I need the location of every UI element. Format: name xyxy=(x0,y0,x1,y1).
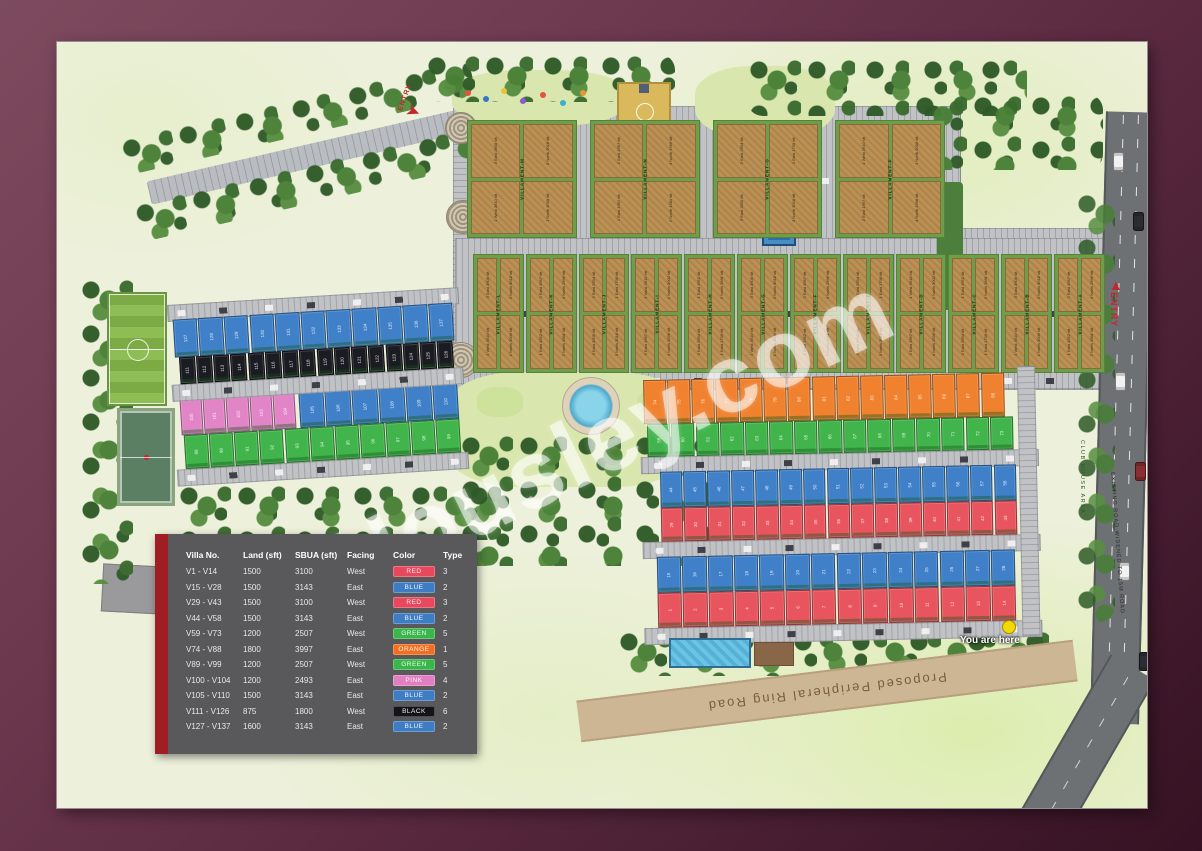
villament-block: 3 East 3605 sft3 North 3018 sft1 West 39… xyxy=(737,254,788,373)
villa-number: 124 xyxy=(408,353,413,361)
villa-number: 77 xyxy=(724,398,729,403)
villa-number: 136 xyxy=(413,320,418,328)
legend-cell-type: 3 xyxy=(443,567,471,576)
villa-unit: 70 xyxy=(916,418,940,451)
legend-cell-land: 1800 xyxy=(243,645,295,654)
villa-number: 96 xyxy=(370,438,375,443)
villa-unit: 51 xyxy=(827,468,850,504)
villament-plot: 1 East 1952 sft xyxy=(688,258,708,312)
villa-number: 12 xyxy=(950,602,955,607)
football-field xyxy=(107,292,167,406)
villament-plot: 4 North 1996 sft xyxy=(923,315,943,369)
villament-block: 2 East 2694 sft1 East 1709 sft3 East 360… xyxy=(713,120,823,238)
villa-number: 87 xyxy=(966,393,971,398)
villa-unit: 86 xyxy=(932,374,956,418)
villament-plot: 2 North 1981 sft xyxy=(646,181,695,235)
villa-number: 81 xyxy=(821,396,826,401)
villa-unit: 135 xyxy=(377,306,404,345)
plot-label: 2 North 1981 sft xyxy=(817,333,837,351)
villa-unit: 91 xyxy=(234,431,260,466)
legend-cell-villa_no: V1 - V14 xyxy=(186,567,243,576)
villa-number: 72 xyxy=(975,431,980,436)
villa-number: 5 xyxy=(770,607,775,610)
villa-number: 125 xyxy=(426,352,431,360)
villament-block: 1 East 1952 sft2 North 1981 sft2 East 26… xyxy=(948,254,999,373)
villa-unit: 58 xyxy=(994,464,1017,500)
villament-plot: 1 East 1709 sft xyxy=(606,258,626,312)
villa-unit: 99 xyxy=(436,418,462,453)
legend-color-chip: GREEN xyxy=(393,628,435,639)
villa-unit: 46 xyxy=(707,470,730,506)
villament-plot: 2 East 2694 sft xyxy=(583,258,603,312)
villa-number: 127 xyxy=(183,334,188,342)
legend-row: V44 - V5815003143EastBLUE2 xyxy=(168,611,477,627)
legend-cell-facing: East xyxy=(347,583,393,592)
villament-block: 2 East 1967 sft4 North 1996 sft1 East 19… xyxy=(790,254,841,373)
villament-plot: 4 North 1996 sft xyxy=(1081,258,1101,312)
plot-label: 3 East 3605 sft xyxy=(847,333,867,351)
villament-plot: 2 East 1967 sft xyxy=(900,315,920,369)
plot-label: 1 West 3910 sft xyxy=(741,333,761,351)
villa-unit: 3 xyxy=(709,591,734,627)
villa-unit: 49 xyxy=(779,469,802,505)
plot-label: 3 North 3018 sft xyxy=(870,333,890,351)
villa-number: 59 xyxy=(656,438,661,443)
villa-unit: 68 xyxy=(867,419,891,452)
legend-header-cell: Land (sft) xyxy=(243,550,295,560)
villament-name-label: VILLAMENT-B xyxy=(1024,293,1029,334)
villa-unit: 24 xyxy=(888,552,913,589)
villa-number: 8 xyxy=(847,605,852,608)
villament-plot: 2 North 1981 sft xyxy=(975,258,995,312)
legend-cell-land: 1500 xyxy=(243,691,295,700)
legend-header-cell: Color xyxy=(393,550,443,560)
villa-number: 2 xyxy=(693,608,698,611)
villa-unit: 120 xyxy=(334,347,352,375)
left-villa-section: 127128129130131132133134135136137 111112… xyxy=(167,285,468,487)
villa-unit: 61 xyxy=(696,423,720,456)
villa-unit: 64 xyxy=(769,421,793,454)
legend-cell-facing: East xyxy=(347,691,393,700)
villa-number: 56 xyxy=(955,481,960,486)
villa-number: 113 xyxy=(219,365,224,372)
villa-number: 46 xyxy=(716,486,721,491)
plot-label: 2 East 1967 sft xyxy=(635,333,655,351)
villa-unit: 41 xyxy=(947,501,970,535)
plot-label: 2 East 1967 sft xyxy=(839,184,888,231)
villa-unit: 35 xyxy=(803,504,826,538)
car-icon xyxy=(1115,372,1126,391)
plot-label: 1 East 1952 sft xyxy=(688,276,708,294)
villa-unit: 19 xyxy=(759,554,784,591)
club-house-area-label: CLUB HOUSE AREA xyxy=(1079,440,1085,514)
plot-label: 1 East 1952 sft xyxy=(1058,333,1078,351)
villa-unit: 118 xyxy=(299,349,317,377)
plot-label: 2 North 1981 sft xyxy=(975,276,995,294)
villa-number: 1 xyxy=(667,609,672,612)
villa-unit: 76 xyxy=(691,379,715,423)
legend-cell-type: 5 xyxy=(443,629,471,638)
villa-number: 64 xyxy=(779,435,784,440)
villament-block: 2 East 1967 sft4 North 1996 sft1 East 19… xyxy=(526,254,577,373)
villa-unit: 122 xyxy=(368,345,386,373)
villament-block: 3 East 3605 sft3 North 3018 sft1 West 39… xyxy=(467,120,577,238)
legend-cell-sbua: 3100 xyxy=(295,598,347,607)
villa-unit: 57 xyxy=(970,465,993,501)
villa-number: 137 xyxy=(439,318,444,326)
legend-header-row: Villa No.Land (sft)SBUA (sft)FacingColor… xyxy=(168,546,477,564)
villa-unit: 105 xyxy=(298,391,326,428)
villa-unit: 5 xyxy=(760,590,785,626)
villa-number: 74 xyxy=(652,399,657,404)
villament-plot: 1 North 3000 sft xyxy=(892,124,941,178)
villament-plot: 2 East 1967 sft xyxy=(635,315,655,369)
villament-name-label: VILLAMENT-N xyxy=(642,158,647,199)
plot-label: 4 North 1996 sft xyxy=(892,184,941,231)
villa-number: 34 xyxy=(789,520,794,525)
plot-label: 1 North 3000 sft xyxy=(764,333,784,351)
villa-number: 71 xyxy=(950,432,955,437)
villament-plot: 2 North 1981 sft xyxy=(711,258,731,312)
villament-plot: 2 East 1967 sft xyxy=(594,124,643,178)
you-are-here-marker[interactable] xyxy=(1002,620,1016,634)
plot-label: 2 North 1981 sft xyxy=(646,184,695,231)
villa-number: 92 xyxy=(269,444,274,449)
villa-unit: 132 xyxy=(300,310,327,349)
legend-cell-type: 5 xyxy=(443,660,471,669)
villa-unit: 108 xyxy=(378,386,406,423)
villa-unit: 21 xyxy=(811,553,836,590)
villa-number: 126 xyxy=(443,351,448,359)
villament-plot: 2 East 1967 sft xyxy=(1058,258,1078,312)
plot-label: 1 East 1709 sft xyxy=(975,333,995,351)
villa-unit: 14 xyxy=(991,585,1016,621)
villa-row-v74-v88: 747576777879808182838485868788 xyxy=(642,373,1005,425)
villa-number: 132 xyxy=(311,326,316,334)
villament-plot: 1 West 3910 sft xyxy=(635,258,655,312)
plot-label: 1 North 3000 sft xyxy=(892,127,941,174)
villa-unit: 42 xyxy=(970,501,993,535)
villa-unit: 131 xyxy=(275,312,302,351)
villa-number: 14 xyxy=(1001,601,1006,606)
villa-number: 98 xyxy=(421,435,426,440)
villa-number: 90 xyxy=(219,447,224,452)
villa-number: 13 xyxy=(976,601,981,606)
villa-number: 17 xyxy=(718,571,723,576)
villament-plot: 3 North 3018 sft xyxy=(606,315,626,369)
swimming-pool-clubhouse xyxy=(669,638,751,668)
villament-plot: 3 East 3605 sft xyxy=(847,315,867,369)
villa-unit: 29 xyxy=(660,507,683,541)
villa-unit: 103 xyxy=(249,394,273,431)
villament-plot: 1 North 3000 sft xyxy=(500,315,520,369)
villa-number: 82 xyxy=(845,395,850,400)
villament-plot: 1 West 3910 sft xyxy=(741,315,761,369)
villa-number: 41 xyxy=(956,516,961,521)
villament-plot: 2 East 2694 sft xyxy=(952,315,972,369)
villament-block: 3 East 3605 sft3 North 3018 sft1 West 39… xyxy=(1001,254,1052,373)
plot-label: 3 North 3018 sft xyxy=(500,276,520,294)
villament-plot: 4 North 1996 sft xyxy=(817,258,837,312)
villa-unit: 110 xyxy=(432,382,460,419)
villa-unit: 8 xyxy=(837,589,862,625)
legend-cell-type: 2 xyxy=(443,691,471,700)
villa-number: 76 xyxy=(700,398,705,403)
villa-number: 115 xyxy=(254,362,259,369)
villa-number: 15 xyxy=(666,572,671,577)
villa-unit: 48 xyxy=(755,469,778,505)
park-lawn-patch xyxy=(477,387,523,417)
villa-unit: 43 xyxy=(994,500,1017,534)
villa-number: 109 xyxy=(416,399,421,407)
legend-cell-land: 1200 xyxy=(243,676,295,685)
legend-cell-sbua: 2507 xyxy=(295,660,347,669)
legend-header-cell: Type xyxy=(443,550,471,560)
villament-plot: 4 North 1996 sft xyxy=(553,258,573,312)
legend-cell-type: 6 xyxy=(443,707,471,716)
villament-plot: 3 East 3605 sft xyxy=(1005,258,1025,312)
villament-block: 1 West 3910 sft1 North 3000 sft2 East 19… xyxy=(896,254,947,373)
plot-label: 3 North 3018 sft xyxy=(1028,276,1048,294)
villa-unit: 27 xyxy=(965,550,990,587)
villa-unit: 107 xyxy=(351,387,379,424)
villa-number: 104 xyxy=(282,407,287,415)
legend-cell-facing: East xyxy=(347,676,393,685)
villa-number: 88 xyxy=(990,392,995,397)
legend-cell-type: 2 xyxy=(443,722,471,731)
villa-unit: 74 xyxy=(643,380,667,424)
villa-number: 110 xyxy=(443,397,448,404)
villa-unit: 31 xyxy=(708,506,731,540)
villament-plot: 2 North 1981 sft xyxy=(817,315,837,369)
villa-number: 57 xyxy=(979,481,984,486)
legend-color-chip: RED xyxy=(393,597,435,608)
villa-unit: 75 xyxy=(667,379,691,423)
plot-label: 1 West 3910 sft xyxy=(900,276,920,294)
villament-plot: 2 East 1967 sft xyxy=(530,258,550,312)
villa-number: 42 xyxy=(980,516,985,521)
villa-unit: 1 xyxy=(657,592,682,628)
villa-number: 58 xyxy=(1003,480,1008,485)
villa-unit: 130 xyxy=(249,314,276,353)
legend-cell-type: 1 xyxy=(443,645,471,654)
plot-label: 3 East 3605 sft xyxy=(1005,276,1025,294)
villa-unit: 73 xyxy=(990,416,1014,449)
legend-cell-land: 1200 xyxy=(243,629,295,638)
legend-cell-villa_no: V29 - V43 xyxy=(186,598,243,607)
car-icon xyxy=(1133,212,1144,231)
plot-label: 2 East 1967 sft xyxy=(1058,276,1078,294)
villament-block: 1 West 3910 sft1 North 3000 sft2 East 19… xyxy=(835,120,945,238)
villa-number: 91 xyxy=(244,446,249,451)
villa-unit: 66 xyxy=(818,420,842,453)
villa-unit: 52 xyxy=(850,467,873,503)
villa-unit: 129 xyxy=(223,315,250,354)
plot-label: 3 North 3018 sft xyxy=(606,333,626,351)
villa-unit: 89 xyxy=(183,434,209,469)
legend-cell-sbua: 1800 xyxy=(295,707,347,716)
villa-number: 55 xyxy=(931,482,936,487)
legend-cell-sbua: 3143 xyxy=(295,583,347,592)
villament-plot: 1 East 1709 sft xyxy=(870,258,890,312)
plot-label: 1 East 1709 sft xyxy=(870,276,890,294)
villa-number: 135 xyxy=(388,322,393,330)
villa-unit: 17 xyxy=(708,555,733,592)
plot-label: 4 North 1996 sft xyxy=(817,276,837,294)
plot-label: 2 East 2694 sft xyxy=(952,333,972,351)
villa-unit: 16 xyxy=(682,556,707,593)
villament-plot: 1 East 1952 sft xyxy=(952,258,972,312)
legend-cell-sbua: 3997 xyxy=(295,645,347,654)
villa-number: 37 xyxy=(860,518,865,523)
villa-unit: 12 xyxy=(940,586,965,622)
villa-unit: 104 xyxy=(273,392,297,429)
villa-unit: 71 xyxy=(941,417,965,450)
villament-plot: 1 West 3910 sft xyxy=(839,124,888,178)
car-icon xyxy=(1135,462,1146,481)
villa-number: 20 xyxy=(795,569,800,574)
villament-name-label: VILLAMENT-C xyxy=(971,293,976,334)
legend-row: V1 - V1415003100WestRED3 xyxy=(168,564,477,580)
villa-number: 73 xyxy=(999,431,1004,436)
legend-header-cell: SBUA (sft) xyxy=(295,550,347,560)
villa-unit: 23 xyxy=(862,552,887,589)
villa-unit: 119 xyxy=(316,348,334,376)
villa-number: 19 xyxy=(769,570,774,575)
villa-number: 75 xyxy=(676,399,681,404)
legend-color-chip: BLUE xyxy=(393,690,435,701)
villa-unit: 90 xyxy=(209,432,235,467)
villament-plot: 2 East 1967 sft xyxy=(839,181,888,235)
villa-unit: 112 xyxy=(196,355,214,383)
villament-plot: 3 East 3605 sft xyxy=(741,258,761,312)
plot-label: 2 East 1967 sft xyxy=(530,276,550,294)
legend-row: V74 - V8818003997EastORANGE1 xyxy=(168,642,477,658)
legend-cell-facing: West xyxy=(347,567,393,576)
legend-cell-facing: East xyxy=(347,645,393,654)
villa-number: 112 xyxy=(202,366,207,373)
entry-side-label: ▲ ENTRY xyxy=(1109,280,1123,327)
villa-number: 62 xyxy=(730,436,735,441)
villa-number: 23 xyxy=(872,568,877,573)
villa-unit: 133 xyxy=(326,309,353,348)
legend-row: V111 - V1268751800WestBLACK6 xyxy=(168,704,477,720)
villa-number: 106 xyxy=(336,404,341,412)
legend-body: V1 - V1415003100WestRED3V15 - V281500314… xyxy=(168,564,477,735)
legend-cell-sbua: 3143 xyxy=(295,691,347,700)
villa-number: 63 xyxy=(754,436,759,441)
plot-label: 2 East 1967 sft xyxy=(594,127,643,174)
legend-cell-type: 2 xyxy=(443,583,471,592)
plot-label: 1 North 3000 sft xyxy=(1028,333,1048,351)
villa-unit: 126 xyxy=(437,341,455,369)
villament-plot: 1 North 3000 sft xyxy=(923,258,943,312)
playground-equipment-icon xyxy=(465,90,471,96)
villa-unit: 67 xyxy=(843,419,867,452)
villa-number: 50 xyxy=(812,484,817,489)
villa-number: 67 xyxy=(852,434,857,439)
villa-number: 123 xyxy=(391,354,396,362)
villa-unit: 111 xyxy=(179,356,197,384)
right-villa-section: 747576777879808182838485868788 596061626… xyxy=(639,366,1045,669)
villa-unit: 109 xyxy=(405,384,433,421)
villa-unit: 83 xyxy=(860,375,884,419)
villa-number: 35 xyxy=(813,519,818,524)
villa-number: 29 xyxy=(669,522,674,527)
villa-unit: 53 xyxy=(874,467,897,503)
villa-number: 9 xyxy=(873,605,878,608)
villa-number: 22 xyxy=(846,568,851,573)
villament-plot: 3 East 3605 sft xyxy=(471,124,520,178)
legend-table: Villa No.Land (sft)SBUA (sft)FacingColor… xyxy=(155,534,477,754)
car-icon xyxy=(1139,652,1147,671)
villa-number: 129 xyxy=(234,331,239,339)
villa-number: 49 xyxy=(788,485,793,490)
villa-unit: 127 xyxy=(172,318,199,357)
legend-cell-villa_no: V59 - V73 xyxy=(186,629,243,638)
villa-unit: 9 xyxy=(863,588,888,624)
plot-label: 3 East 3605 sft xyxy=(471,127,520,174)
villa-unit: 102 xyxy=(226,395,250,432)
villa-unit: 82 xyxy=(836,376,860,420)
legend-cell-land: 1500 xyxy=(243,614,295,623)
villa-number: 111 xyxy=(185,367,190,374)
villa-unit: 77 xyxy=(715,378,739,422)
swimming-pool-park xyxy=(562,377,620,435)
villa-number: 86 xyxy=(942,393,947,398)
villa-unit: 13 xyxy=(966,586,991,622)
legend-color-chip: GREEN xyxy=(393,659,435,670)
legend-cell-land: 875 xyxy=(243,707,295,716)
legend-color-chip: ORANGE xyxy=(393,644,435,655)
villa-number: 31 xyxy=(717,521,722,526)
villament-name-label: VILLAMENT-H xyxy=(707,293,712,334)
legend-row: V100 - V10412002493EastPINK4 xyxy=(168,673,477,689)
legend-cell-facing: West xyxy=(347,660,393,669)
villa-unit: 101 xyxy=(202,397,226,434)
villa-number: 26 xyxy=(949,566,954,571)
villament-plot: 3 North 3018 sft xyxy=(870,315,890,369)
villa-unit: 88 xyxy=(981,373,1005,417)
legend-cell-villa_no: V100 - V104 xyxy=(186,676,243,685)
villa-unit: 65 xyxy=(794,421,818,454)
plot-label: 3 East 3605 sft xyxy=(741,276,761,294)
villament-plot: 2 East 1967 sft xyxy=(794,258,814,312)
plot-label: 2 East 2694 sft xyxy=(583,276,603,294)
villa-unit: 18 xyxy=(734,555,759,592)
villa-number: 24 xyxy=(898,567,903,572)
villa-unit: 63 xyxy=(745,422,769,455)
villament-plot: 4 North 1996 sft xyxy=(646,124,695,178)
villa-number: 16 xyxy=(692,572,697,577)
villa-number: 44 xyxy=(669,487,674,492)
you-are-here-label: You are here xyxy=(960,635,1020,646)
villament-plot: 1 East 1709 sft xyxy=(769,124,818,178)
villa-number: 39 xyxy=(908,517,913,522)
plot-label: 1 East 1952 sft xyxy=(530,333,550,351)
villament-plot: 1 North 3000 sft xyxy=(523,181,572,235)
villa-unit: 55 xyxy=(922,466,945,502)
villament-plot: 3 East 3605 sft xyxy=(583,315,603,369)
villa-unit: 93 xyxy=(284,428,310,463)
villa-unit: 113 xyxy=(213,354,231,382)
plot-label: 2 North 1981 sft xyxy=(1081,333,1101,351)
villament-block: 2 East 1967 sft4 North 1996 sft1 East 19… xyxy=(590,120,700,238)
villament-plot: 3 North 3018 sft xyxy=(523,124,572,178)
villa-unit: 79 xyxy=(763,377,787,421)
villa-number: 85 xyxy=(918,394,923,399)
villa-unit: 128 xyxy=(198,317,225,356)
